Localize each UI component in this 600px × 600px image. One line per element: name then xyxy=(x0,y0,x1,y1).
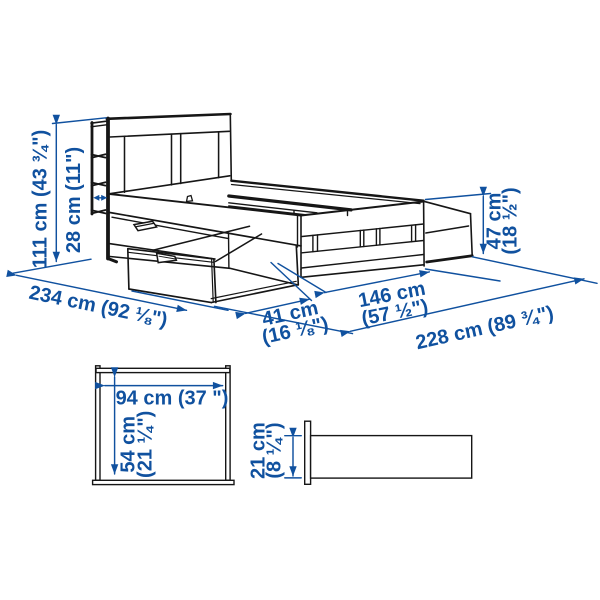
svg-text:28 cm (11"): 28 cm (11") xyxy=(63,147,85,253)
svg-text:94 cm (37 "): 94 cm (37 ") xyxy=(116,388,229,410)
svg-text:228 cm (89 ¾"): 228 cm (89 ¾") xyxy=(414,302,556,354)
svg-text:(18 ½"): (18 ½") xyxy=(500,187,522,254)
svg-text:234 cm (92 ⅛"): 234 cm (92 ⅛") xyxy=(27,282,169,332)
svg-text:111 cm (43 ¾"): 111 cm (43 ¾") xyxy=(30,130,52,268)
svg-text:(8 ¼"): (8 ¼") xyxy=(264,423,286,479)
svg-text:(21 ¼"): (21 ¼") xyxy=(135,411,157,478)
